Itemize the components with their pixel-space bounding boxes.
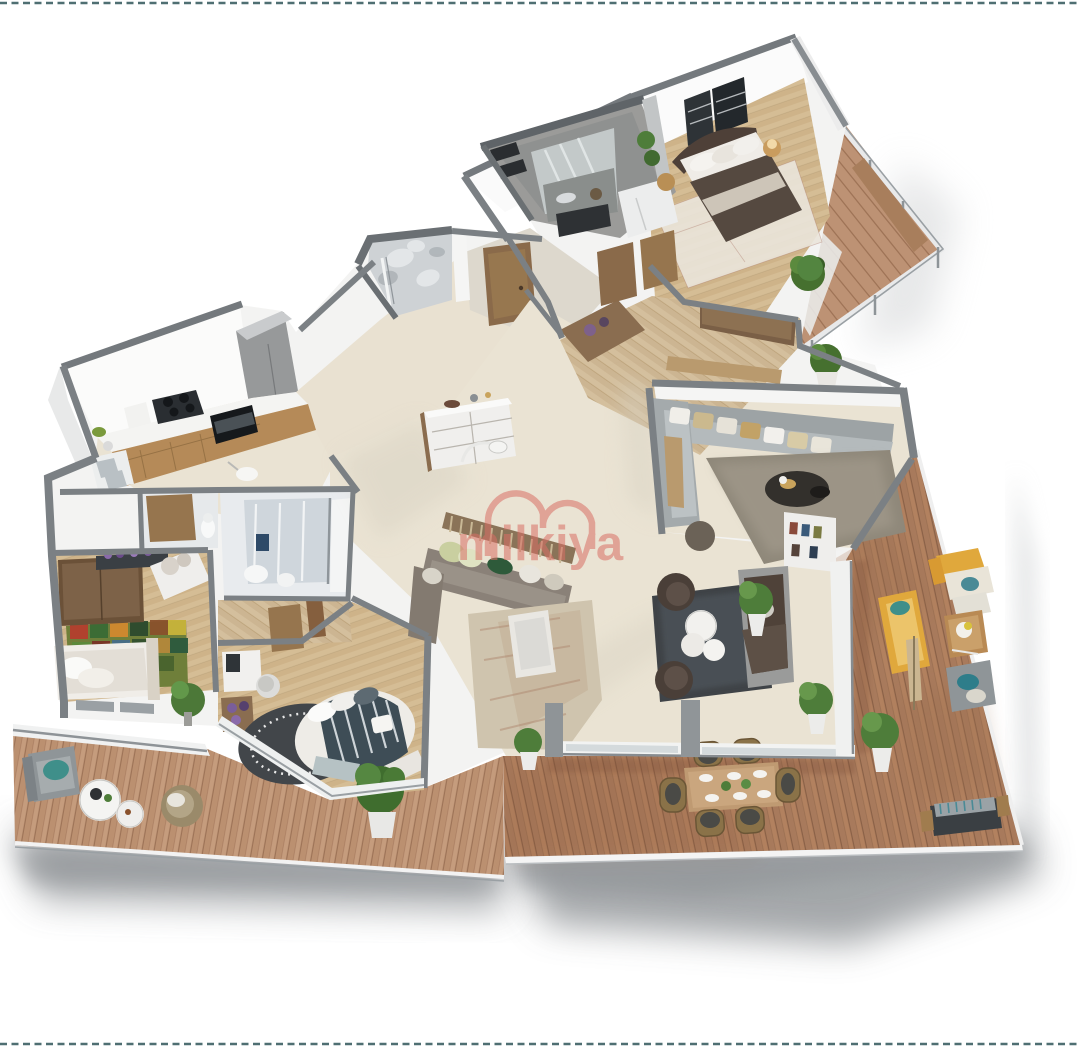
svg-text:milkiya: milkiya (457, 517, 624, 571)
